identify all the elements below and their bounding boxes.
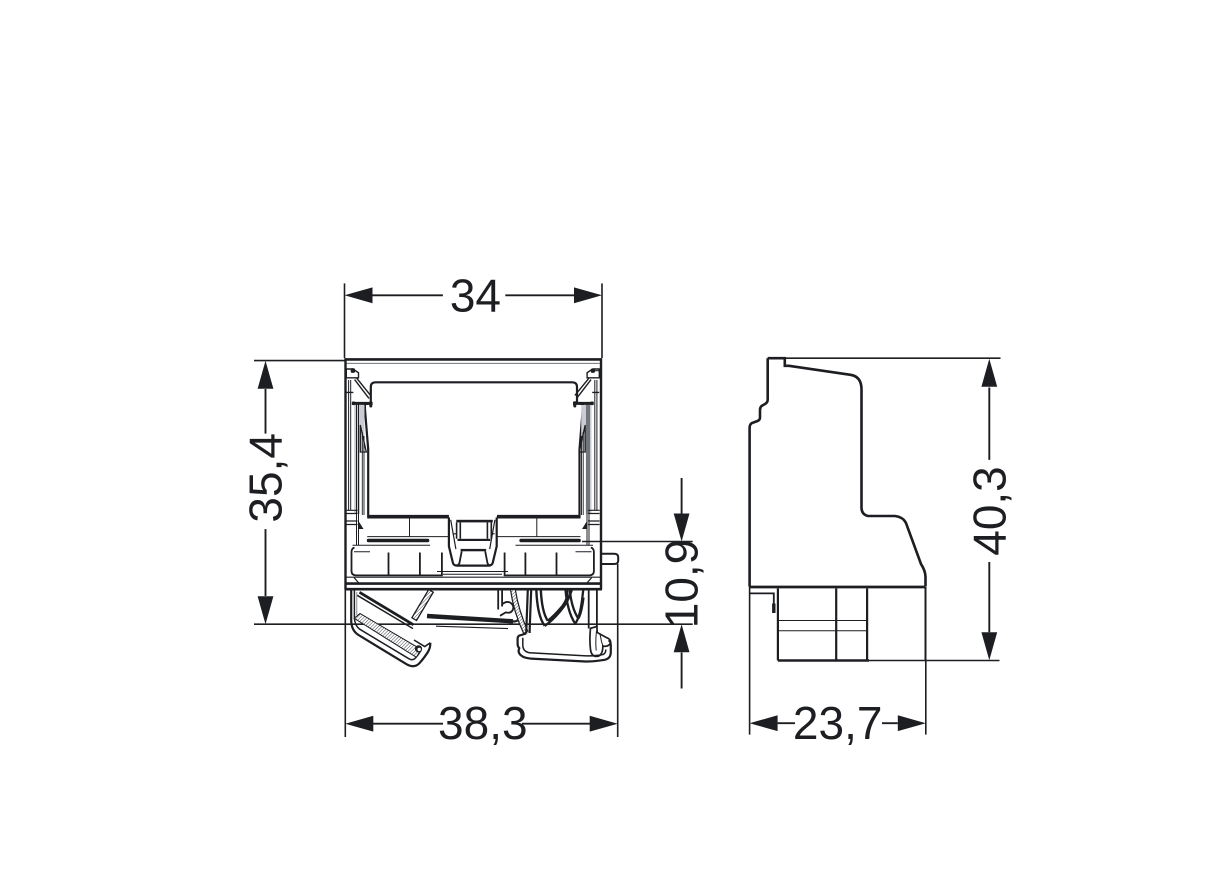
svg-text:40,3: 40,3 (963, 466, 1015, 556)
svg-text:35,4: 35,4 (240, 433, 292, 523)
svg-text:38,3: 38,3 (438, 697, 528, 749)
svg-text:34: 34 (450, 270, 501, 322)
svg-text:23,7: 23,7 (793, 697, 883, 749)
svg-text:10,9: 10,9 (656, 539, 708, 629)
